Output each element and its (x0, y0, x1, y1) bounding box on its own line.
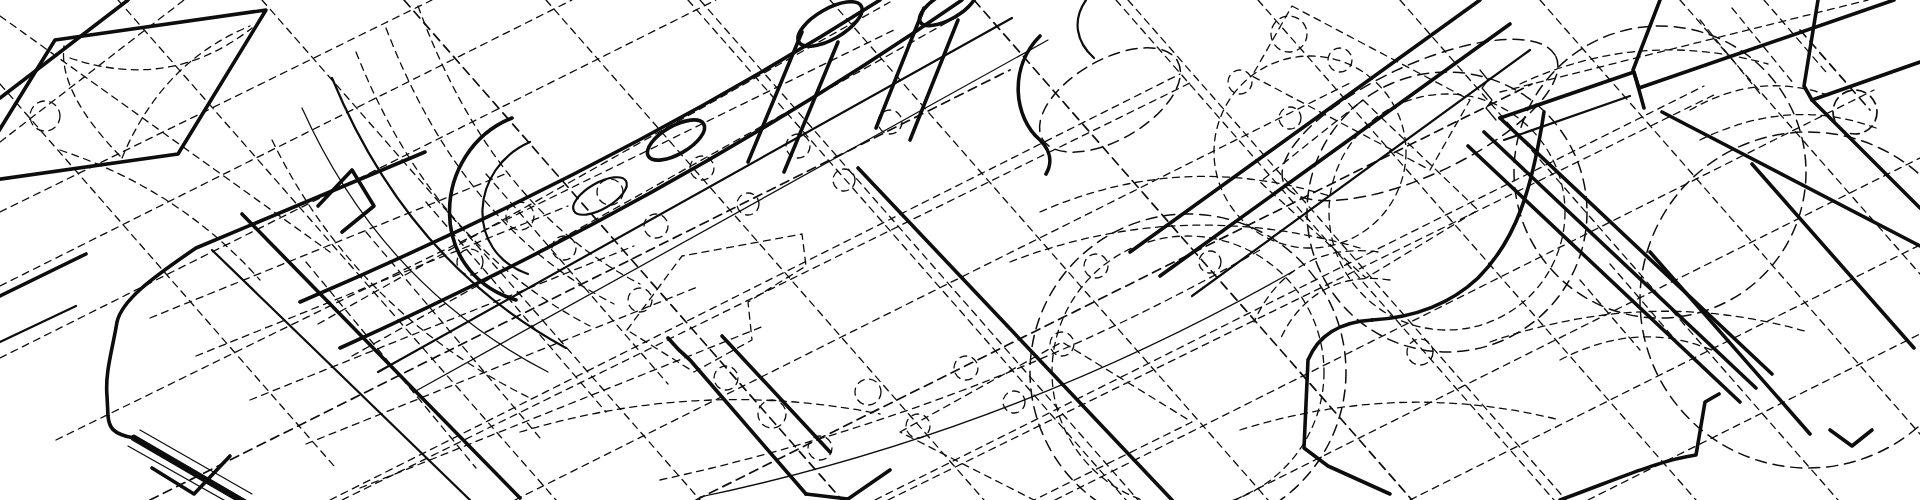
pulley-belt-band-edge (910, 20, 958, 140)
pulley-belt-band-edge (876, 8, 924, 128)
pulley-belt-band-edge (340, 0, 962, 348)
hidden-grid-a-edge (56, 28, 898, 440)
front-counterweight-edge (627, 234, 806, 372)
bolt-holes-edge (1003, 391, 1025, 413)
engine-wireframe-figure (0, 0, 1920, 500)
pulley-rim-arcs-edge (418, 6, 640, 284)
top-left-piston-edge (0, 10, 266, 184)
boot-outline-edge (1372, 112, 1544, 320)
rear-counterweight-edge (858, 168, 1172, 500)
bolt-holes-edge (1199, 251, 1221, 273)
pulley-slots-edge (914, 0, 982, 33)
bolt-holes-edge (758, 400, 786, 428)
bolt-holes-edge (855, 379, 881, 405)
bolt-holes-edge (1228, 70, 1252, 94)
top-left-piston-edge (63, 46, 120, 156)
hidden-grid-a (0, 0, 1920, 500)
hidden-grid-b-edge (404, 0, 842, 500)
hidden-grid-b-edge (830, 0, 1268, 500)
crankshaft-journals-edge (1078, 0, 1094, 58)
wireframe-illustration (0, 0, 1920, 500)
pulley-rim-arcs-edge (302, 108, 548, 372)
bolt-holes-edge (1279, 107, 1301, 129)
bolt-holes-edge (1050, 332, 1074, 356)
crank-webs-right-edge (1752, 164, 1914, 348)
piston-bores-edge (1214, 56, 1406, 248)
hidden-grid-b-edge (1400, 0, 1838, 500)
crankshaft-journals-edge (1504, 96, 1630, 140)
top-left-piston-edge (0, 0, 128, 98)
hidden-grid-a-edge (150, 70, 1010, 500)
hidden-grid-b-edge (118, 0, 556, 500)
crank-webs-right-edge (1804, 0, 1920, 100)
bolt-holes (457, 48, 1433, 460)
crankshaft-journals-edge (1484, 132, 1756, 388)
hidden-grid-a-edge (342, 82, 1192, 500)
crank-webs-right-edge (1650, 252, 1810, 434)
bolt-holes-edge (597, 179, 623, 205)
bolt-holes-edge (506, 202, 534, 230)
top-left-piston-edge (0, 0, 184, 142)
hidden-grid-a-edge (875, 86, 1704, 500)
piston-bores-edge (1052, 236, 1324, 500)
hidden-grid-a-edge (1500, 0, 1868, 92)
bolt-holes-edge (1328, 48, 1352, 72)
hidden-grid-b-edge (1116, 0, 1554, 500)
pulley-belt-band-edge (318, 2, 890, 324)
rear-counterweight-edge (722, 336, 830, 452)
bolt-holes-edge (628, 288, 652, 312)
crank-web-claw-edge (318, 170, 374, 232)
pulley-belt-band-edge (352, 14, 962, 356)
pulley-belt-band-edge (378, 18, 1012, 372)
crank-web-claw-edge (0, 306, 76, 342)
crank-webs-right-edge (1633, 0, 1894, 88)
bolt-holes-edge (1084, 254, 1108, 278)
crank-web-claw-edge (212, 250, 470, 500)
piston-bores (1022, 7, 1920, 500)
front-counterweight (107, 152, 806, 500)
rear-counterweight-edge (700, 272, 1292, 497)
crankshaft-journals-edge (1500, 118, 1772, 374)
crank-webs-right (1560, 0, 1920, 500)
hidden-arcs-edge (1240, 402, 1560, 430)
pulley-belt-band-edge (784, 42, 838, 172)
crank-web-claw-edge (0, 254, 86, 296)
hidden-arcs-edge (520, 400, 880, 432)
hidden-grid-a-edge (0, 0, 432, 212)
piston-bores-edge (1261, 7, 1579, 233)
hidden-grid-a-edge (515, 82, 1352, 500)
hidden-arcs-edge (60, 150, 260, 280)
piston-bores-edge (1833, 90, 1877, 134)
pulley-slots-edge (791, 0, 868, 55)
boot-outline-edge (1304, 320, 1390, 494)
hidden-grid-b (0, 0, 1920, 500)
piston-bores-edge (1640, 132, 1920, 468)
crank-webs-right-edge (1662, 112, 1920, 246)
boot-outline (1254, 112, 1544, 494)
hidden-grid-b-edge (0, 84, 334, 466)
hidden-grid-b-edge (688, 0, 1126, 500)
front-counterweight-edge (360, 326, 764, 488)
bolt-holes-edge (954, 356, 978, 380)
crank-webs-right-edge (1830, 430, 1872, 446)
